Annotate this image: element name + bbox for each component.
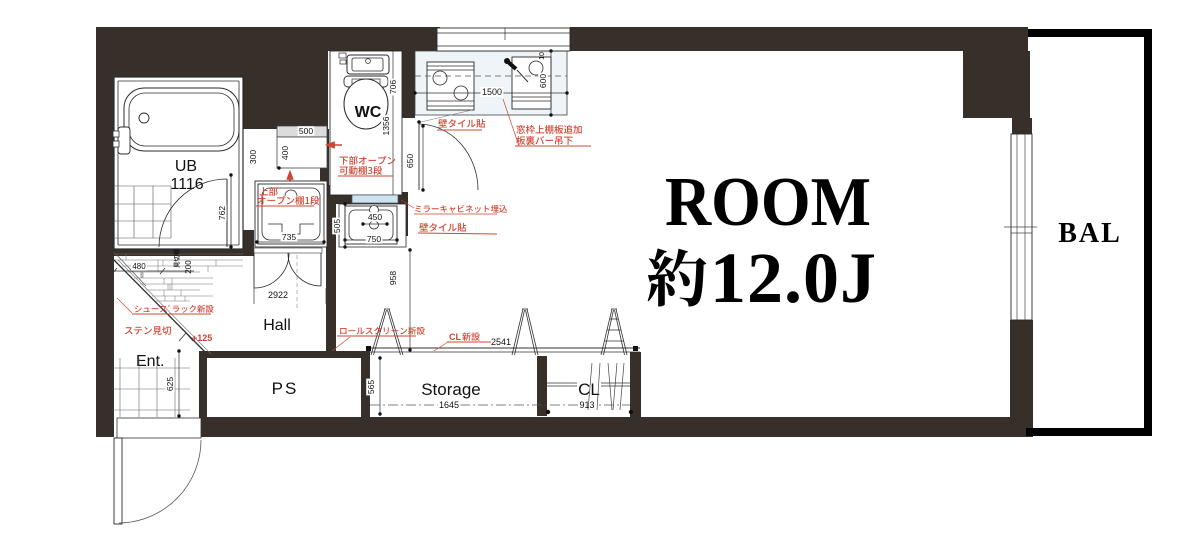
- svg-text:BAL: BAL: [1058, 218, 1122, 249]
- svg-text:Storage: Storage: [421, 380, 481, 399]
- svg-text:706: 706: [388, 80, 398, 94]
- svg-text:505: 505: [332, 219, 342, 233]
- svg-text:958: 958: [388, 271, 398, 285]
- svg-text:1356: 1356: [381, 116, 391, 135]
- svg-text:Ent.: Ent.: [136, 353, 164, 370]
- svg-text:1500: 1500: [482, 87, 502, 97]
- svg-text:400: 400: [280, 146, 290, 160]
- svg-text:750: 750: [367, 234, 381, 244]
- svg-text:480: 480: [132, 262, 146, 271]
- svg-text:Hall: Hall: [263, 317, 291, 334]
- svg-text:+125: +125: [192, 333, 212, 343]
- svg-text:762: 762: [217, 206, 227, 220]
- svg-text:300: 300: [248, 150, 258, 164]
- svg-text:2541: 2541: [491, 337, 511, 347]
- svg-text:200: 200: [184, 260, 193, 274]
- svg-text:WC: WC: [355, 104, 382, 121]
- svg-text:500: 500: [299, 126, 313, 136]
- svg-text:565: 565: [366, 380, 376, 394]
- svg-text:UB: UB: [175, 158, 197, 175]
- svg-text:PS: PS: [272, 379, 299, 398]
- svg-text:450: 450: [368, 212, 382, 222]
- svg-text:2922: 2922: [268, 290, 288, 300]
- svg-text:735: 735: [282, 232, 296, 242]
- svg-text:913: 913: [579, 400, 594, 410]
- svg-text:ROOM: ROOM: [665, 164, 871, 241]
- svg-text:12.0J: 12.0J: [710, 238, 877, 318]
- svg-text:1645: 1645: [439, 400, 459, 410]
- svg-text:650: 650: [405, 154, 415, 168]
- svg-text:625: 625: [165, 377, 175, 391]
- svg-text:600: 600: [538, 74, 548, 88]
- svg-text:CL: CL: [449, 332, 461, 342]
- svg-text:10: 10: [539, 52, 546, 60]
